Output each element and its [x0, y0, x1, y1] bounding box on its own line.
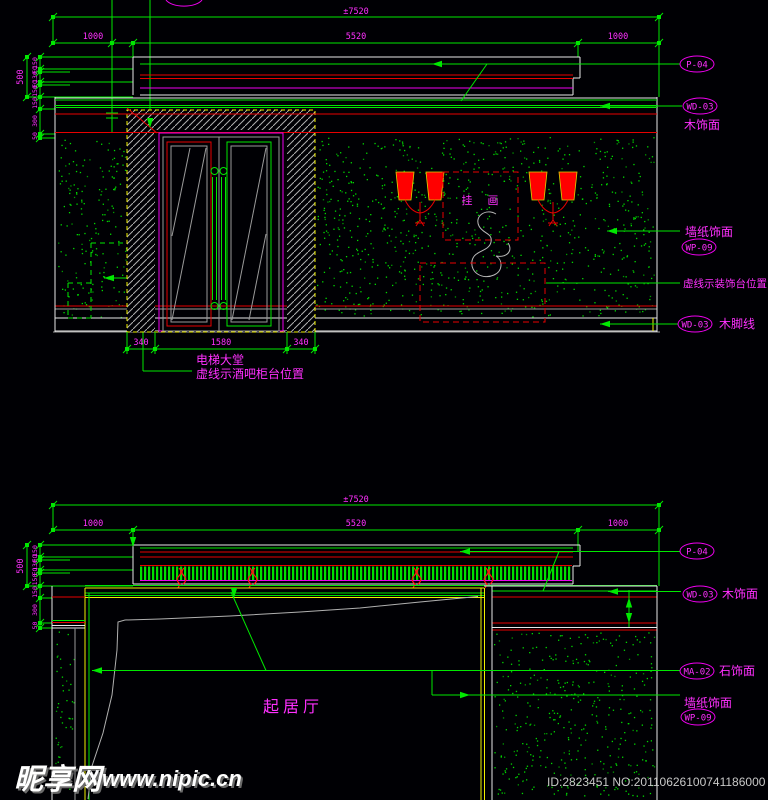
tag-wp09-desc: 墙纸饰面 [685, 225, 733, 239]
elevator-door [159, 133, 283, 331]
door-leaf-right [227, 142, 271, 326]
tag2-wd03-desc: 木饰面 [722, 587, 758, 601]
console-note-label: 虚线示装饰台位置 [683, 277, 767, 290]
cad-screenshot: ±7520 1000 5520 1000 500 150 EQ 130 EQ 1… [0, 0, 768, 800]
dim2-500: 500 [16, 558, 26, 573]
tag2-p04: P-04 [686, 548, 708, 558]
tag-wd03: WD-03 [686, 103, 713, 113]
dim-total: ±7520 [343, 7, 369, 17]
right-wall-section [484, 586, 657, 800]
tag2-wd03: WD-03 [686, 591, 713, 601]
swan-ornament [472, 212, 510, 277]
wall-lamp-right [529, 172, 577, 226]
bar-note-label: 虚线示酒吧柜台位置 [196, 366, 304, 381]
dim-500: 500 [16, 69, 26, 84]
console-outline [420, 263, 545, 322]
dimension-height-left-2: 500 150 EQ 130 EQ 150 150 300 50 [16, 545, 133, 629]
dim-5520: 5520 [346, 32, 366, 42]
tag-p04: P-04 [686, 61, 708, 71]
watermark: 昵享网 昵享网 www.nipic.cn www.nipic.cn ID:282… [14, 763, 766, 798]
tag-wd03b-desc: 木脚线 [719, 316, 755, 331]
dim2-1000-left: 1000 [83, 519, 103, 529]
tag2-wp09-desc: 墙纸饰面 [684, 696, 732, 710]
leader-arrows [92, 61, 632, 698]
dim-300: 300 [31, 115, 39, 127]
cad-drawing: ±7520 1000 5520 1000 500 150 EQ 130 EQ 1… [0, 0, 768, 800]
dim-340-left: 340 [133, 338, 148, 348]
dim-1000-left: 1000 [83, 32, 103, 42]
room-label-lobby: 电梯大堂 [196, 353, 244, 367]
cornice-p04 [133, 57, 580, 95]
tag2-wp09: WP-09 [684, 714, 711, 724]
dim2-300: 300 [31, 604, 39, 616]
dim-340-right: 340 [293, 338, 308, 348]
tag-wd03-desc: 木饰面 [684, 118, 720, 132]
dim-1000-right: 1000 [608, 32, 628, 42]
dim-1580: 1580 [211, 338, 231, 348]
dimension-width-top: ±7520 1000 5520 1000 [53, 7, 659, 97]
room-label-living: 起居厅 [263, 698, 323, 716]
art-frame: 挂 画 [443, 172, 518, 277]
top-elevation: ±7520 1000 5520 1000 500 150 EQ 130 EQ 1… [16, 0, 767, 381]
callouts-right-top: P-04 WD-03 木饰面 墙纸饰面 WP-09 虚线示装饰台位置 WD-03… [432, 56, 767, 332]
dim2-1000-right: 1000 [608, 519, 628, 529]
curtain-stripe-band [140, 567, 572, 581]
tag-wp09: WP-09 [685, 244, 712, 254]
wall-lamp-left [396, 172, 444, 226]
bottom-elevation: ±7520 1000 5520 1000 500 150 EQ 130 EQ 1… [16, 495, 758, 800]
dim-total-2: ±7520 [343, 495, 369, 505]
image-id-text: ID:2823451 NO:20110626100741186000 [547, 775, 766, 789]
tag-wd03b: WD-03 [681, 321, 708, 331]
art-label: 挂 画 [461, 193, 504, 207]
door-leaf-left [167, 142, 211, 326]
watermark-site: 昵享网 [14, 763, 105, 796]
dim2-5520: 5520 [346, 519, 366, 529]
tag-ma02-desc: 石饰面 [719, 664, 755, 678]
watermark-url: www.nipic.cn [102, 766, 242, 791]
tag-ma02: MA-02 [683, 668, 710, 678]
